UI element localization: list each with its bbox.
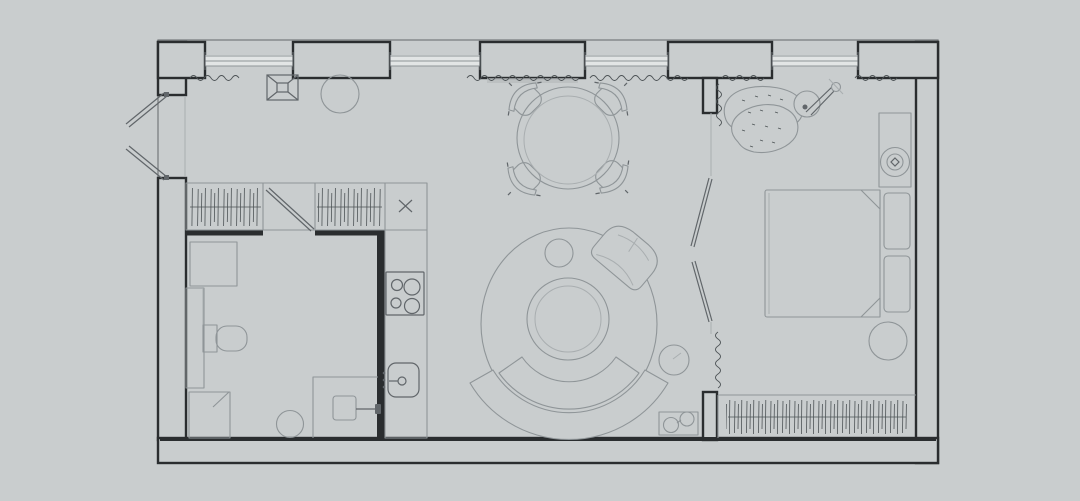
swivel-armchair [588, 219, 664, 293]
partition-panel-lower [692, 261, 712, 322]
lounge-chair [724, 86, 803, 152]
window-strip-2 [390, 52, 480, 70]
round-stool [277, 411, 304, 438]
bottom-wall [158, 438, 938, 463]
round-stool-top [881, 148, 910, 177]
window-strip-4 [772, 52, 858, 70]
hall-closet-band [186, 183, 427, 231]
window-strip-1 [205, 52, 293, 70]
round-dining-table [517, 87, 619, 189]
dining-set [491, 66, 644, 211]
living-area [470, 219, 698, 440]
floor-plan-drawing [0, 0, 1080, 501]
kitchen-counter-run [385, 230, 427, 438]
top-pier-4 [668, 42, 772, 78]
tray-with-cups [659, 412, 698, 435]
pillow-upper [884, 193, 910, 249]
entry-door-leaf-lower [126, 146, 167, 180]
round-side-table [659, 345, 689, 375]
vanity-counter [186, 288, 204, 388]
partition-stub-bottom [703, 392, 717, 440]
shower-tray [189, 392, 230, 438]
round-coffee-table [527, 278, 609, 360]
mattress [765, 190, 880, 317]
entry-door-leaf-upper [126, 93, 167, 127]
extractor-vent-symbol [267, 75, 298, 100]
round-ceiling-lamp [321, 75, 359, 113]
sliding-partition [691, 113, 712, 334]
pillow-lower [884, 256, 910, 312]
washbasin-unit [313, 377, 381, 438]
bedside-desk [879, 113, 911, 187]
bathroom-sliding-door-leaf [266, 188, 314, 231]
blanket-fold-bottom [861, 298, 880, 317]
floor-plan-page [0, 0, 1080, 501]
dining-table-inner-rim [524, 96, 612, 184]
double-bed [765, 190, 910, 317]
bathroom [186, 242, 381, 438]
kitchen-sink [383, 363, 419, 397]
top-pier-3 [480, 42, 585, 78]
wall-faucet-fixture [375, 404, 381, 414]
four-burner-hob [386, 272, 424, 315]
arc-floor-lamp [794, 79, 843, 117]
toilet [203, 325, 247, 352]
partition-panel-upper [691, 178, 712, 247]
right-wall [916, 42, 938, 463]
bedroom [718, 79, 916, 438]
corner-cabinet [190, 242, 237, 286]
small-pouf-on-rug [545, 239, 573, 267]
blanket-fold-top [861, 190, 880, 209]
round-pouf [869, 322, 907, 360]
top-pier-2 [293, 42, 390, 78]
top-pier-1 [158, 42, 205, 78]
double-entry-door [126, 92, 185, 180]
tall-cabinet-x-mark [399, 200, 412, 212]
partition-stub-top [703, 78, 717, 113]
left-wall-lower [158, 178, 186, 440]
top-pier-5-corner [858, 42, 938, 78]
bedroom-wardrobe [718, 395, 916, 438]
kitchen [267, 75, 427, 438]
window-strip-3 [585, 52, 668, 70]
